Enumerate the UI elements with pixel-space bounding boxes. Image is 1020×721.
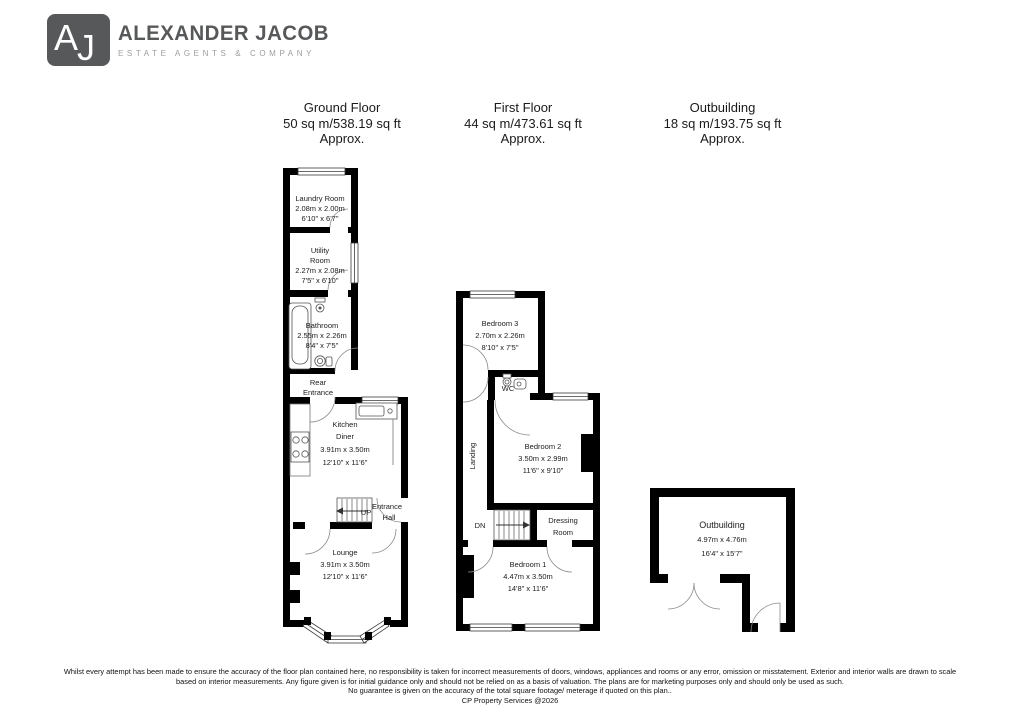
ground-floor-plan: Laundry Room 2.08m x 2.00m 6'10" x 6'7" … [280,165,422,653]
ground-floor-title: Ground Floor 50 sq m/538.19 sq ft Approx… [262,100,422,147]
room-metric: 3.91m x 3.50m [320,560,370,569]
room-label: Bathroom [306,321,339,330]
room-label: Outbuilding [699,520,745,530]
toilet-icon [315,356,332,366]
room-dressing: Dressing Room [548,516,578,537]
room-label: Rear [310,378,327,387]
room-imperial: 8'10" x 7'5" [482,343,519,352]
disclaimer-line3: No guarantee is given on the accuracy of… [0,686,1020,696]
disclaimer-line1: Whilst every attempt has been made to en… [0,667,1020,677]
stairs-down [494,510,530,540]
room-lounge: Lounge 3.91m x 3.50m 12'10" x 11'6" [320,548,370,581]
room-label: Bedroom 2 [525,442,562,451]
room-metric: 2.70m x 2.26m [475,331,525,340]
room-label: WC [502,384,515,393]
room-metric: 2.08m x 2.00m [295,204,345,213]
logo-letter-j: J [77,27,95,69]
approx-line: Approx. [443,131,603,147]
title-line: Outbuilding [640,100,805,116]
agency-tagline: ESTATE AGENTS & COMPANY [118,49,336,58]
room-kitchen-diner: Kitchen Diner 3.91m x 3.50m 12'10" x 11'… [320,420,370,467]
stairs-up-label: UP [361,508,371,517]
room-label: Bedroom 1 [510,560,547,569]
agency-name: ALEXANDER JACOB [118,22,329,46]
title-line: First Floor [443,100,603,116]
room-imperial: 11'6" x 9'10" [523,466,564,475]
area-line: 18 sq m/193.75 sq ft [640,116,805,132]
room-bedroom3: Bedroom 3 2.70m x 2.26m 8'10" x 7'5" [475,319,525,352]
logo-letter-a: A [54,17,78,59]
room-label: Bedroom 3 [482,319,519,328]
room-landing: Landing DN [468,443,485,530]
room-metric: 2.55m x 2.26m [297,331,347,340]
room-label: Landing [468,443,477,470]
disclaimer-line4: CP Property Services @2026 [0,696,1020,706]
logo-monogram-icon: A J [47,14,110,66]
stairs-down-label: DN [475,521,486,530]
room-bedroom2: Bedroom 2 3.50m x 2.99m 11'6" x 9'10" [518,442,568,475]
kitchen-sink-icon [356,403,397,419]
room-label: Laundry Room [295,194,344,203]
shower-icon [315,298,325,312]
outbuilding-doors [668,583,780,632]
area-line: 44 sq m/473.61 sq ft [443,116,603,132]
room-bedroom1: Bedroom 1 4.47m x 3.50m 14'8" x 11'6" [503,560,553,593]
room-imperial: 6'10" x 6'7" [302,214,339,223]
room-label: Kitchen [332,420,357,429]
room-label: Room [553,528,573,537]
room-label: Entrance [303,388,333,397]
room-imperial: 16'4" x 15'7" [701,549,742,558]
room-imperial: 14'8" x 11'6" [508,584,549,593]
floorplan-page: { "logo": { "monogram_a": "A", "monogram… [0,0,1020,721]
wc-basin-icon [514,379,526,389]
room-imperial: 12'10" x 11'6" [323,572,368,581]
room-metric: 3.91m x 3.50m [320,445,370,454]
room-label: Utility [311,246,330,255]
disclaimer: Whilst every attempt has been made to en… [0,667,1020,705]
bay-window [303,617,391,643]
disclaimer-line2: based on interior measurements. Any figu… [0,677,1020,687]
room-label: Hall [383,513,396,522]
room-imperial: 8'4" x 7'5" [306,341,339,350]
room-imperial: 7'5" x 6'10" [302,276,339,285]
room-label: Room [310,256,330,265]
logo-text: ALEXANDER JACOB ESTATE AGENTS & COMPANY [118,22,336,58]
room-laundry: Laundry Room 2.08m x 2.00m 6'10" x 6'7" [295,194,345,223]
outbuilding-title: Outbuilding 18 sq m/193.75 sq ft Approx. [640,100,805,147]
room-metric: 4.47m x 3.50m [503,572,553,581]
room-metric: 4.97m x 4.76m [697,535,747,544]
room-wc: WC [502,384,515,393]
room-label: Dressing [548,516,578,525]
room-label: Lounge [332,548,357,557]
first-floor-title: First Floor 44 sq m/473.61 sq ft Approx. [443,100,603,147]
room-outbuilding: Outbuilding 4.97m x 4.76m 16'4" x 15'7" [697,520,747,558]
agency-logo: A J ALEXANDER JACOB ESTATE AGENTS & COMP… [47,14,336,66]
room-rear-entrance: Rear Entrance [303,378,333,397]
first-floor-plan: Bedroom 3 2.70m x 2.26m 8'10" x 7'5" WC … [450,286,608,636]
hob-icon [291,432,309,462]
approx-line: Approx. [640,131,805,147]
outbuilding-plan: Outbuilding 4.97m x 4.76m 16'4" x 15'7" [646,483,801,643]
outbuilding-walls [650,488,795,632]
room-metric: 3.50m x 2.99m [518,454,568,463]
room-label: Diner [336,432,354,441]
room-utility: Utility Room 2.27m x 2.08m 7'5" x 6'10" [295,246,345,285]
room-metric: 2.27m x 2.08m [295,266,345,275]
area-line: 50 sq m/538.19 sq ft [262,116,422,132]
room-imperial: 12'10" x 11'6" [323,458,368,467]
title-line: Ground Floor [262,100,422,116]
room-label: Entrance [372,502,402,511]
approx-line: Approx. [262,131,422,147]
